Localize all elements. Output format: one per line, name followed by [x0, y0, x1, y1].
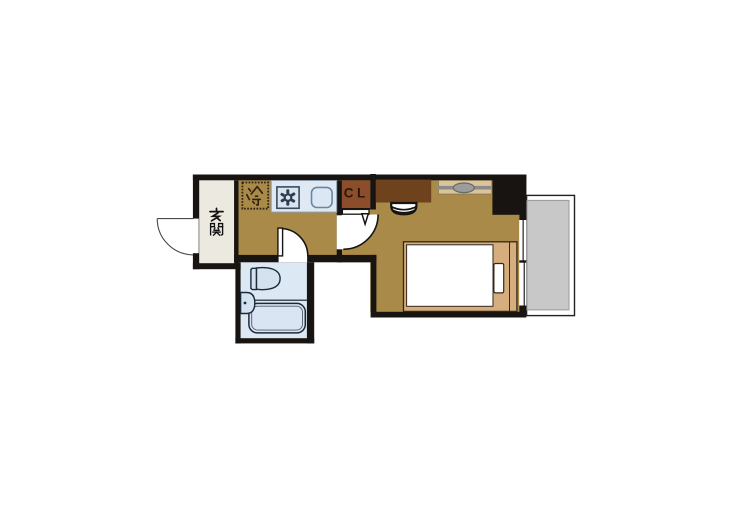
svg-text:CL: CL — [344, 186, 369, 201]
